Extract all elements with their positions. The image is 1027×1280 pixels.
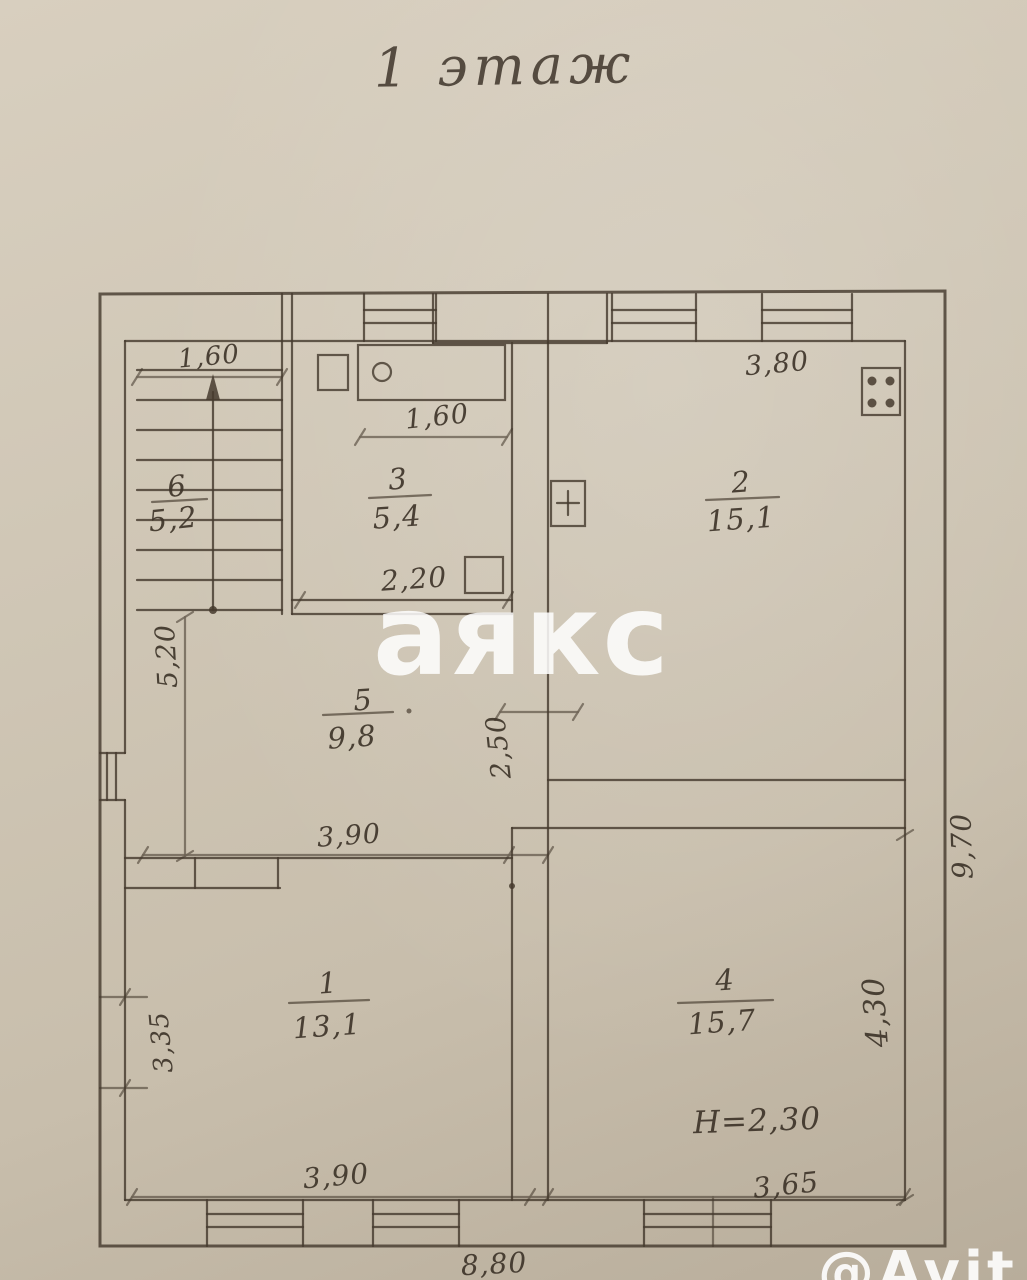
room-5-area: 9,8: [326, 718, 377, 755]
dim-room2-width: 3,80: [744, 346, 811, 382]
dim-hall-width: 3,90: [316, 818, 382, 853]
window-icons-bottom: [207, 1200, 771, 1246]
watermark-center: аякс: [373, 571, 671, 701]
room-2-number: 2: [730, 464, 752, 499]
dim-room1-depth: 3,35: [144, 1010, 179, 1074]
room-5-number: 5: [352, 682, 374, 717]
room-6-area: 5,2: [147, 500, 199, 539]
window-icon-left: [100, 753, 125, 800]
dim-house-depth: 9,70: [944, 812, 979, 879]
dim-hall-depth: 2,50: [480, 713, 518, 780]
room-3-number: 3: [387, 461, 409, 496]
bathtub-icon: [358, 345, 505, 400]
dim-left-span: 5,20: [150, 623, 184, 689]
dim-room4-width: 3,65: [751, 1165, 820, 1205]
floor-plan-scan: 1 этаж 6 5,2 3 5,4 2 15,1 5 9,8 1 13,1 4…: [0, 0, 1027, 1280]
dim-ceiling-height: Н=2,30: [692, 1101, 821, 1141]
page-title: 1 этаж: [373, 32, 637, 100]
dim-stairs-width: 1,60: [177, 339, 241, 374]
sink-icon: [318, 355, 348, 390]
room-2-area: 15,1: [706, 500, 777, 539]
room-3-area: 5,4: [371, 498, 422, 535]
gas-heater-icon: [551, 481, 585, 526]
room-1-number: 1: [317, 965, 339, 1000]
wall-room5-room1: [125, 858, 512, 888]
room-4-area: 15,7: [687, 1003, 758, 1042]
wall-room2-room4: [512, 780, 905, 828]
room-1-area: 13,1: [292, 1007, 363, 1046]
stove-icon: [862, 368, 900, 415]
stair-direction-arrow: [206, 374, 220, 614]
dim-house-width: 8,80: [460, 1246, 528, 1280]
dim-room1-width: 3,90: [302, 1157, 371, 1196]
room-6-number: 6: [166, 468, 189, 504]
watermark-corner: @Avit: [818, 1240, 1018, 1280]
dim-room4-depth: 4,30: [856, 975, 896, 1048]
room-4-number: 4: [714, 962, 736, 997]
